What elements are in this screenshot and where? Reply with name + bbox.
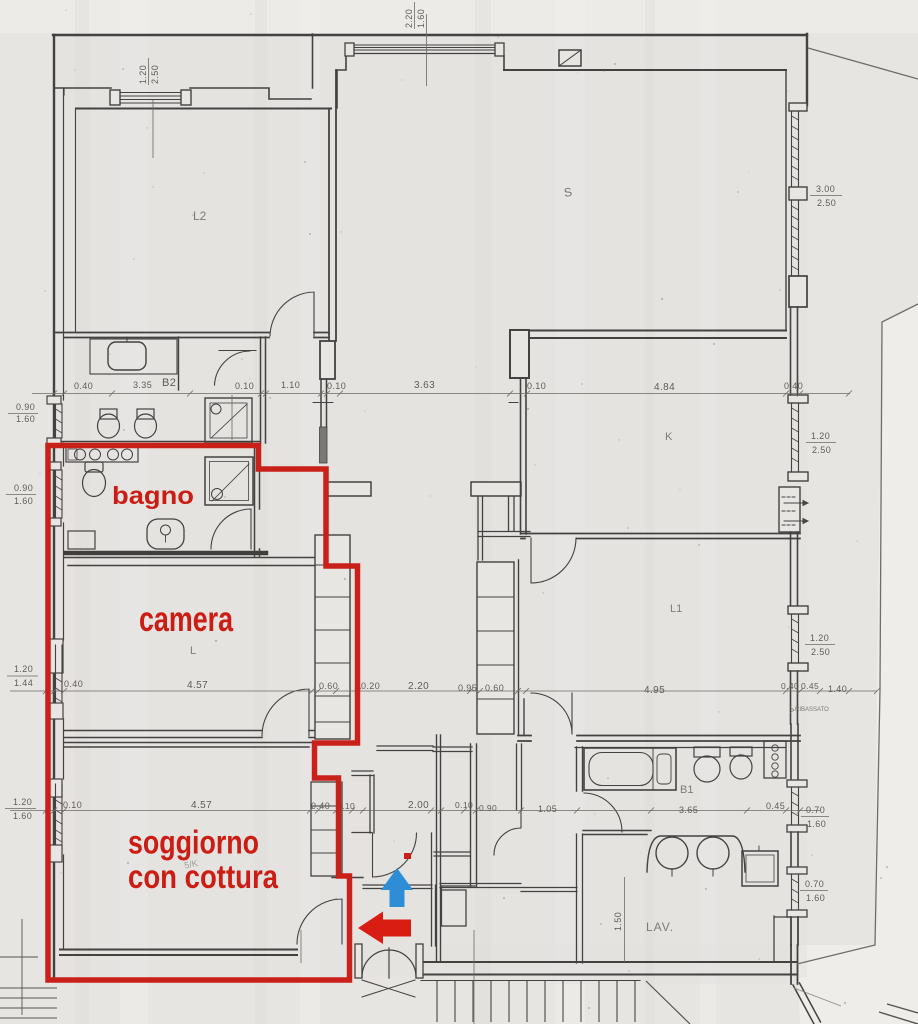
svg-text:1.20: 1.20 bbox=[811, 431, 830, 441]
svg-text:0.10: 0.10 bbox=[63, 800, 82, 810]
svg-text:1.20: 1.20 bbox=[13, 797, 32, 807]
svg-text:1.60: 1.60 bbox=[14, 496, 33, 506]
svg-text:con cottura: con cottura bbox=[128, 858, 279, 895]
svg-text:K: K bbox=[665, 431, 673, 443]
svg-text:bagno: bagno bbox=[112, 482, 194, 510]
svg-text:4.95: 4.95 bbox=[644, 685, 665, 696]
svg-text:2.20: 2.20 bbox=[408, 681, 429, 692]
svg-text:3.65: 3.65 bbox=[679, 805, 698, 815]
svg-text:0.20: 0.20 bbox=[361, 681, 380, 691]
svg-text:1.60: 1.60 bbox=[416, 9, 426, 28]
svg-text:1.50: 1.50 bbox=[613, 912, 623, 931]
svg-text:0.45: 0.45 bbox=[766, 801, 785, 811]
svg-text:soggiorno: soggiorno bbox=[128, 824, 259, 861]
svg-text:1.20: 1.20 bbox=[810, 633, 829, 643]
svg-text:1.44: 1.44 bbox=[14, 678, 33, 688]
svg-text:2.50: 2.50 bbox=[811, 647, 830, 657]
svg-text:B2: B2 bbox=[162, 377, 176, 389]
svg-text:3.63: 3.63 bbox=[414, 380, 435, 391]
svg-text:4.57: 4.57 bbox=[191, 800, 212, 811]
svg-text:4.84: 4.84 bbox=[654, 382, 675, 393]
svg-text:L2: L2 bbox=[193, 209, 207, 223]
svg-text:camera: camera bbox=[139, 600, 233, 639]
svg-text:0.90: 0.90 bbox=[14, 483, 33, 493]
svg-text:L: L bbox=[190, 645, 196, 657]
svg-text:0.40: 0.40 bbox=[784, 381, 803, 391]
svg-text:1.60: 1.60 bbox=[806, 893, 825, 903]
svg-text:0.60: 0.60 bbox=[485, 683, 504, 693]
svg-text:0.10: 0.10 bbox=[327, 381, 346, 391]
svg-text:1.60: 1.60 bbox=[16, 414, 35, 424]
svg-text:3.35: 3.35 bbox=[133, 380, 152, 390]
svg-text:1.20: 1.20 bbox=[138, 65, 148, 84]
svg-text:B1: B1 bbox=[680, 784, 693, 796]
svg-text:LAV.: LAV. bbox=[646, 920, 674, 934]
svg-text:0.10: 0.10 bbox=[455, 800, 473, 810]
svg-text:0.90: 0.90 bbox=[479, 803, 497, 813]
svg-text:0.40: 0.40 bbox=[74, 381, 93, 391]
svg-text:0.40: 0.40 bbox=[311, 801, 330, 811]
svg-text:0.10: 0.10 bbox=[527, 381, 546, 391]
svg-text:1.60: 1.60 bbox=[807, 819, 826, 829]
svg-text:2.50: 2.50 bbox=[150, 65, 160, 84]
svg-text:2.00: 2.00 bbox=[408, 800, 429, 811]
svg-text:1.20: 1.20 bbox=[14, 664, 33, 674]
svg-text:RIBASSATO: RIBASSATO bbox=[795, 707, 829, 713]
svg-text:0.70: 0.70 bbox=[805, 879, 824, 889]
svg-text:3.00: 3.00 bbox=[816, 184, 835, 194]
svg-text:4.57: 4.57 bbox=[187, 680, 208, 691]
svg-text:1.05: 1.05 bbox=[538, 804, 557, 814]
svg-text:2.50: 2.50 bbox=[812, 445, 831, 455]
svg-text:2.50: 2.50 bbox=[817, 198, 836, 208]
svg-text:0.45: 0.45 bbox=[801, 681, 819, 691]
svg-text:1.10: 1.10 bbox=[281, 380, 300, 390]
svg-text:0.90: 0.90 bbox=[16, 402, 35, 412]
svg-text:0.95: 0.95 bbox=[458, 683, 477, 693]
svg-text:2.20: 2.20 bbox=[404, 9, 414, 28]
svg-text:0.10: 0.10 bbox=[235, 381, 254, 391]
svg-text:1.60: 1.60 bbox=[13, 811, 32, 821]
svg-text:0.40: 0.40 bbox=[781, 681, 799, 691]
svg-text:0.40: 0.40 bbox=[64, 679, 83, 689]
svg-text:0.70: 0.70 bbox=[806, 805, 825, 815]
svg-text:1.40: 1.40 bbox=[828, 684, 847, 694]
svg-text:L1: L1 bbox=[670, 603, 682, 615]
svg-text:0.60: 0.60 bbox=[319, 681, 338, 691]
